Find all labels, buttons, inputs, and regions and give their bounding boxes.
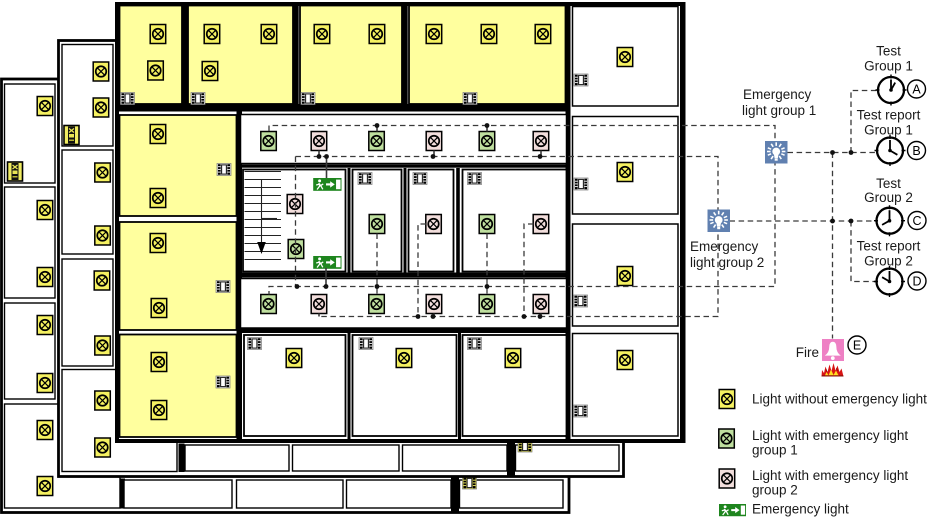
svg-text:B: B [912,144,920,158]
svg-text:Light with emergency light: Light with emergency light [752,428,908,443]
svg-text:Test report: Test report [857,108,921,123]
svg-text:group 1: group 1 [752,443,798,458]
svg-text:Test: Test [876,44,901,59]
svg-text:E: E [853,338,861,352]
svg-text:D: D [912,274,921,288]
svg-text:group 2: group 2 [752,483,798,498]
svg-text:Emergency: Emergency [743,87,812,102]
svg-text:Emergency: Emergency [690,239,759,254]
svg-text:C: C [912,214,921,228]
svg-text:Emergency light: Emergency light [752,502,849,517]
svg-text:Group 2: Group 2 [864,254,913,269]
svg-text:light group 2: light group 2 [690,255,764,270]
svg-text:Light with emergency light: Light with emergency light [752,468,908,483]
svg-text:Light without emergency light: Light without emergency light [752,392,927,407]
svg-text:Group 2: Group 2 [864,190,913,205]
svg-text:A: A [912,82,921,96]
svg-text:Fire: Fire [796,345,819,360]
svg-text:Group 1: Group 1 [864,123,913,138]
svg-text:Group 1: Group 1 [864,59,913,74]
svg-text:light group 1: light group 1 [742,103,816,118]
svg-text:Test: Test [876,176,901,191]
svg-text:Test report: Test report [857,239,921,254]
